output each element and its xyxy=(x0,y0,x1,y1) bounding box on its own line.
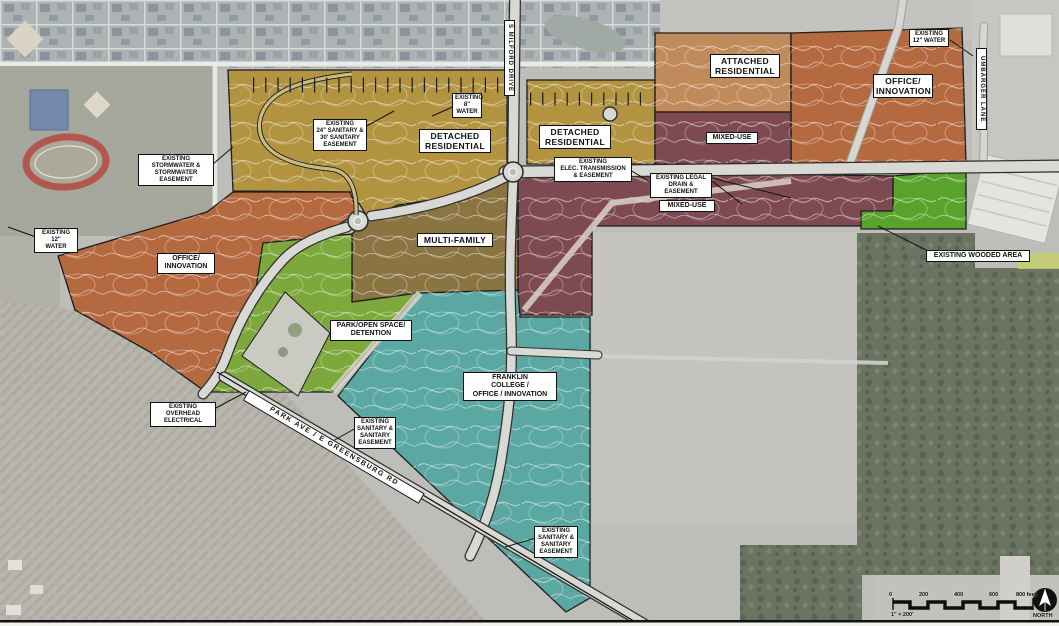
scale-tick-600: 600 xyxy=(989,592,998,598)
aerial-open-field xyxy=(592,232,860,524)
road-teal-east-west xyxy=(511,351,598,355)
callout-legal-drain: EXISTING LEGAL DRAIN & EASEMENT xyxy=(650,173,712,198)
callout-sanitary24: EXISTING 24" SANITARY & 30' SANITARY EAS… xyxy=(313,119,367,151)
callout-elec-transmission: EXISTING ELEC. TRANSMISSION & EASEMENT xyxy=(554,157,632,182)
road-label-umbarger-lane: UMBARGER LANE xyxy=(976,48,987,130)
zone-label-mixed-use-central: MIXED-USE xyxy=(659,200,715,212)
scale-tick-800: 800 feet xyxy=(1016,592,1037,598)
callout-water12-northeast: EXISTING 12" WATER xyxy=(909,29,949,47)
zone-label-detached-residential-west: DETACHED RESIDENTIAL xyxy=(419,129,491,153)
callout-sanitary-south: EXISTING SANITARY & SANITARY EASEMENT xyxy=(534,526,578,558)
scale-tick-0: 0 xyxy=(889,592,892,598)
cul-de-sac xyxy=(603,107,617,121)
scale-tick-400: 400 xyxy=(954,592,963,598)
scale-tick-200: 200 xyxy=(919,592,928,598)
road-label-s-milford-drive: S MILFORD DRIVE xyxy=(504,20,515,96)
aerial-running-track xyxy=(24,134,107,189)
zone-label-attached-residential: ATTACHED RESIDENTIAL xyxy=(710,54,780,78)
zone-label-office-innovation-northeast: OFFICE/ INNOVATION xyxy=(873,74,933,98)
zone-label-mixed-use-north: MIXED-USE xyxy=(706,132,758,144)
callout-water8: EXISTING 8" WATER xyxy=(452,93,482,118)
aerial-woods-far-east xyxy=(975,268,1059,575)
aerial-woods-east xyxy=(857,233,975,575)
north-label: NORTH xyxy=(1033,613,1053,619)
zone-label-existing-wooded-area: EXISTING WOODED AREA xyxy=(926,250,1030,262)
zone-label-office-innovation-west: OFFICE/ INNOVATION xyxy=(157,253,215,274)
callout-overhead-electrical: EXISTING OVERHEAD ELECTRICAL xyxy=(150,402,216,427)
callout-stormwater-easement: EXISTING STORMWATER & STORMWATER EASEMEN… xyxy=(138,154,214,186)
zone-label-detached-residential-east: DETACHED RESIDENTIAL xyxy=(539,125,611,149)
scale-ratio: 1" = 200' xyxy=(891,612,913,618)
master-plan-map: DETACHED RESIDENTIAL DETACHED RESIDENTIA… xyxy=(0,0,1059,626)
aerial-woods-south xyxy=(740,545,862,626)
aerial-blue-building xyxy=(30,90,68,130)
zone-label-franklin-college: FRANKLIN COLLEGE / OFFICE / INNOVATION xyxy=(463,372,557,401)
callout-water12-west: EXISTING 12" WATER xyxy=(34,228,78,253)
zone-label-park-open-space: PARK/OPEN SPACE/ DETENTION xyxy=(330,320,412,341)
zone-label-multi-family: MULTI-FAMILY xyxy=(417,233,493,247)
map-frame-line xyxy=(0,620,1059,623)
callout-sanitary-west: EXISTING SANITARY & SANITARY EASEMENT xyxy=(354,417,396,449)
